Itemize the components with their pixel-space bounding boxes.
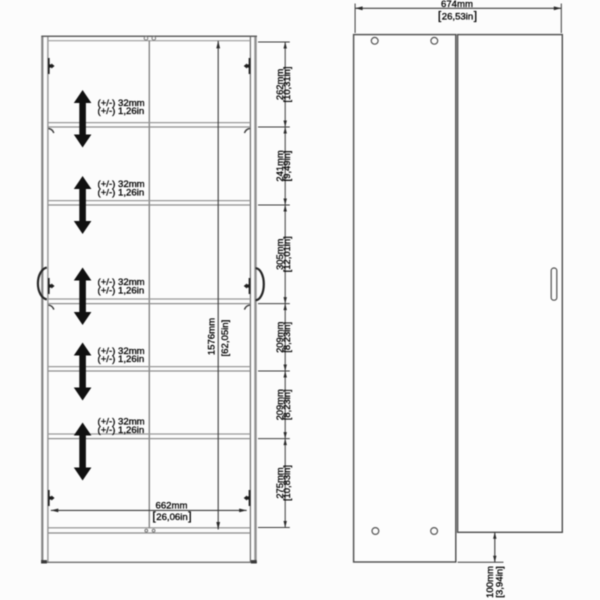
svg-text:[3,94in]: [3,94in]: [495, 566, 506, 597]
svg-text:(+/-) 1,26in: (+/-) 1,26in: [98, 425, 145, 436]
svg-text:[10,31in]: [10,31in]: [281, 67, 292, 103]
svg-text:[12,01in]: [12,01in]: [281, 236, 292, 272]
svg-text:(+/-) 1,26in: (+/-) 1,26in: [98, 354, 145, 365]
svg-text:[8,23in]: [8,23in]: [281, 389, 292, 420]
svg-text:[9,49in]: [9,49in]: [281, 151, 292, 182]
svg-text:(+/-) 1,26in: (+/-) 1,26in: [98, 188, 145, 199]
svg-text:[10,83in]: [10,83in]: [281, 465, 292, 501]
svg-text:(+/-) 1,26in: (+/-) 1,26in: [98, 286, 145, 297]
svg-text:[62,05in]: [62,05in]: [220, 320, 231, 357]
svg-text:662mm: 662mm: [156, 500, 188, 511]
svg-text:1576mm: 1576mm: [206, 318, 217, 355]
svg-text:(+/-) 1,26in: (+/-) 1,26in: [98, 106, 145, 117]
svg-text:[8,23in]: [8,23in]: [281, 322, 292, 353]
svg-text:[26,53in]: [26,53in]: [438, 8, 477, 22]
svg-text:674mm: 674mm: [441, 0, 473, 10]
svg-text:[26,06in]: [26,06in]: [152, 509, 191, 523]
